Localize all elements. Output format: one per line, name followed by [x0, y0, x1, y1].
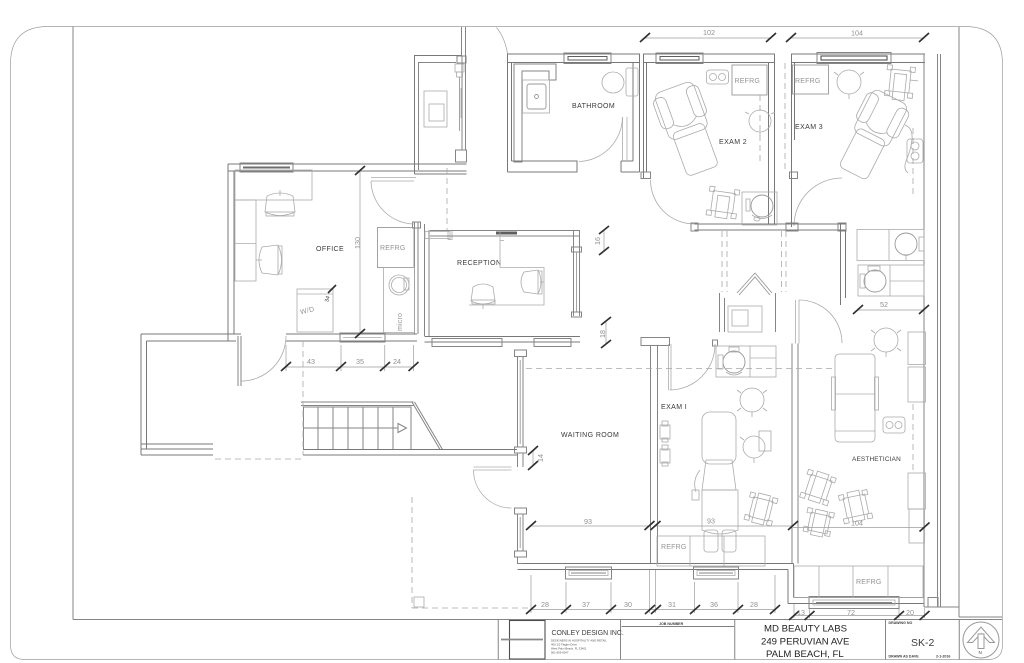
svg-text:2-1-2016: 2-1-2016: [936, 655, 950, 659]
svg-text:43: 43: [307, 357, 315, 366]
svg-text:CONLEY DESIGN INC.: CONLEY DESIGN INC.: [552, 630, 624, 637]
svg-text:EXAM 2: EXAM 2: [719, 139, 747, 146]
svg-text:REFRG: REFRG: [380, 245, 406, 252]
svg-text:93: 93: [707, 517, 715, 526]
svg-text:37: 37: [582, 600, 590, 609]
svg-text:RECEPTION: RECEPTION: [457, 260, 501, 267]
svg-text:SK-2: SK-2: [911, 637, 935, 649]
svg-text:36: 36: [710, 600, 718, 609]
svg-text:28: 28: [541, 600, 549, 609]
svg-text:DRAWING NO: DRAWING NO: [889, 621, 913, 625]
svg-text:N: N: [979, 650, 982, 655]
svg-text:REFRG: REFRG: [856, 579, 882, 586]
svg-text:BATHROOM: BATHROOM: [572, 103, 615, 110]
svg-text:35: 35: [356, 357, 364, 366]
svg-text:REFRG: REFRG: [735, 78, 761, 85]
svg-text:EXAM 3: EXAM 3: [795, 124, 823, 131]
svg-text:WAITING ROOM: WAITING ROOM: [561, 432, 619, 439]
svg-text:EXAM I: EXAM I: [661, 404, 687, 411]
svg-text:REFRG: REFRG: [795, 78, 821, 85]
svg-text:102: 102: [703, 28, 715, 37]
svg-text:52: 52: [880, 300, 888, 309]
svg-text:JOB NUMBER: JOB NUMBER: [659, 622, 684, 626]
svg-text:20: 20: [906, 608, 914, 617]
svg-text:18: 18: [598, 330, 607, 338]
svg-text:24: 24: [393, 357, 401, 366]
svg-text:16: 16: [593, 237, 602, 245]
svg-text:31: 31: [668, 600, 676, 609]
svg-text:130: 130: [353, 237, 362, 249]
svg-text:30: 30: [624, 600, 632, 609]
svg-text:REFRG: REFRG: [661, 544, 687, 551]
svg-text:PALM BEACH, FL: PALM BEACH, FL: [766, 649, 844, 660]
svg-text:104: 104: [851, 519, 863, 528]
svg-text:micro: micro: [397, 313, 404, 331]
svg-text:AESTHETICIAN: AESTHETICIAN: [852, 456, 901, 463]
svg-text:104: 104: [851, 29, 863, 38]
svg-text:93: 93: [584, 517, 592, 526]
svg-text:561-655-6047: 561-655-6047: [551, 651, 569, 655]
svg-text:OFFICE: OFFICE: [316, 246, 344, 253]
svg-text:MD BEAUTY LABS: MD BEAUTY LABS: [764, 624, 847, 635]
svg-text:28: 28: [750, 600, 758, 609]
svg-text:DRAWN AS DAVE: DRAWN AS DAVE: [889, 655, 920, 659]
svg-text:13: 13: [797, 608, 805, 617]
svg-text:14: 14: [536, 454, 545, 462]
svg-text:72: 72: [847, 608, 855, 617]
svg-text:249 PERUVIAN AVE: 249 PERUVIAN AVE: [761, 637, 849, 648]
